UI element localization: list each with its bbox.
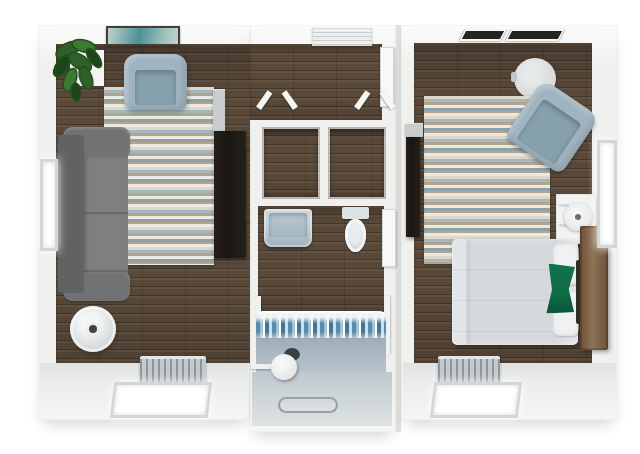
armchair-seat [135,70,176,105]
bathroom-door [382,209,396,267]
living-room-bottom-window [110,382,212,418]
bedroom-bottom-window [430,382,522,418]
sofa-cushions [84,156,128,274]
bedroom-right-window [597,140,617,248]
bedroom-tv-shelf [405,123,423,137]
bedroom-radiator [438,356,500,384]
sofa-backrest [58,135,84,293]
wall-art [106,26,180,46]
living-room-armchair [124,54,187,110]
closet-left-floor [262,127,320,199]
wall-art-canvas [108,28,178,44]
media-shelf [213,89,225,131]
bedroom-tv [406,137,420,237]
shower-drain [278,397,338,413]
vanity-sink [264,209,312,247]
sectional-sofa [58,127,130,301]
side-table-lamp [89,325,97,333]
sink-basin [269,213,307,237]
closet-right-floor [328,127,386,199]
living-room-left-window [40,159,58,251]
shower-curtain [256,311,386,341]
living-room-radiator [140,356,206,384]
lamp-finial [575,214,581,220]
living-room-tv-console [214,131,246,258]
toilet-tank [342,207,369,219]
hallway-floor [250,44,382,120]
floor-plan-render [0,0,640,454]
ceiling-vent-right [505,29,565,41]
table-tab [511,72,517,82]
shower-seat [271,354,297,380]
ceiling-vent-left [459,29,507,41]
ac-unit [312,28,372,46]
round-side-table [70,306,116,352]
potted-plant-icon [50,34,112,102]
